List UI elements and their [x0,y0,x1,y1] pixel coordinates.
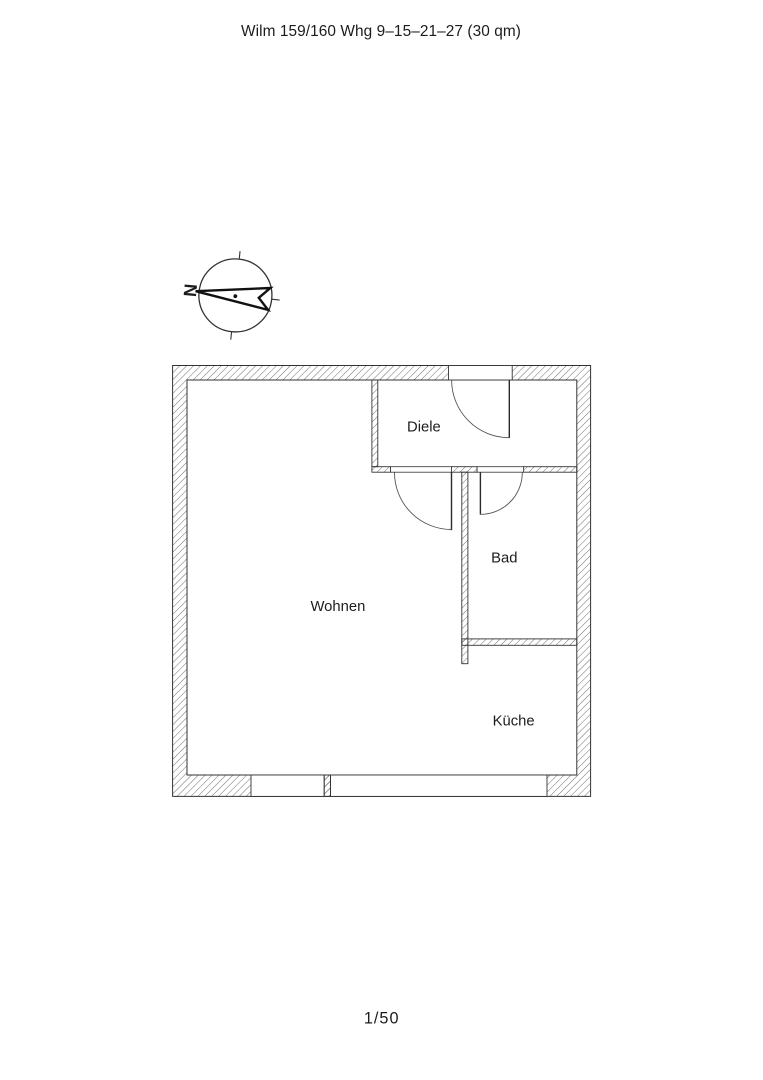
svg-text:Bad: Bad [491,550,517,566]
svg-text:Küche: Küche [493,713,535,729]
svg-text:Wohnen: Wohnen [310,599,365,615]
svg-text:N: N [180,283,201,298]
svg-text:1/50: 1/50 [364,1009,400,1027]
svg-text:Diele: Diele [407,419,441,435]
svg-text:Wilm 159/160 Whg 9–15–21–27 (3: Wilm 159/160 Whg 9–15–21–27 (30 qm) [241,23,521,40]
